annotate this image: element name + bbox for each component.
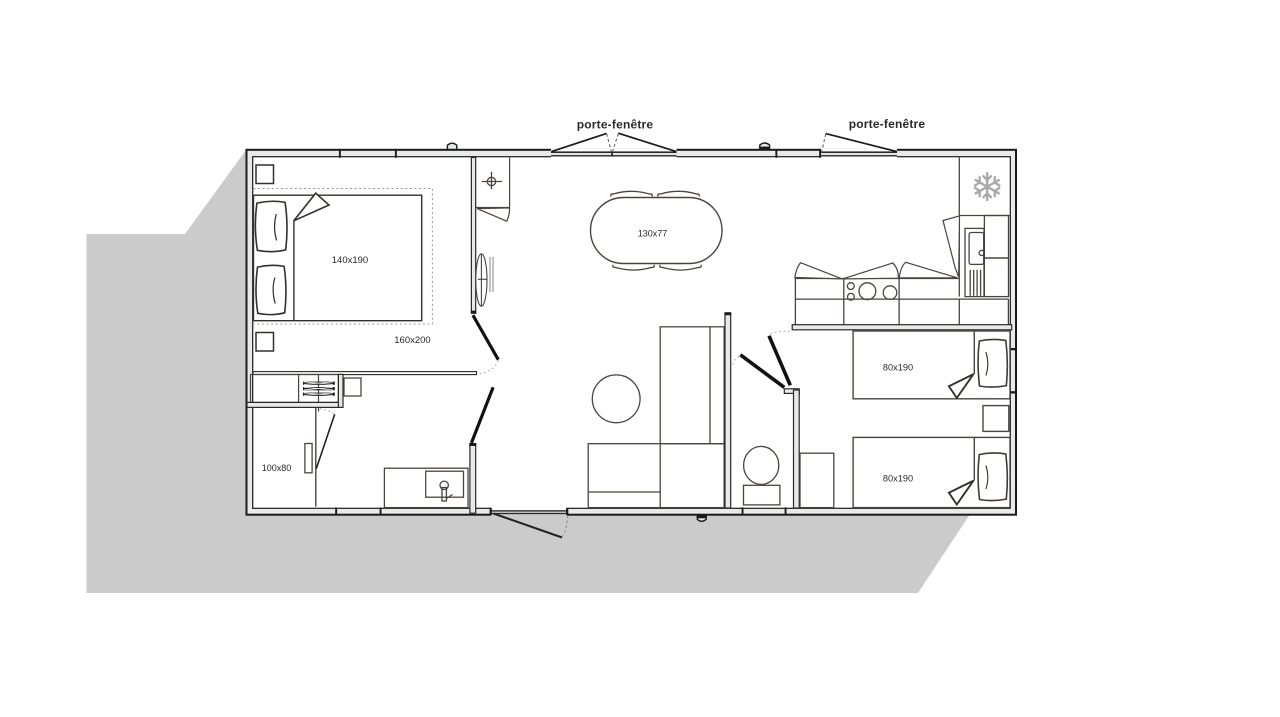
svg-text:100x80: 100x80 (262, 463, 292, 473)
svg-text:130x77: 130x77 (638, 229, 668, 239)
svg-text:porte-fenêtre: porte-fenêtre (849, 117, 926, 131)
svg-text:80x190: 80x190 (883, 362, 913, 372)
svg-text:porte-fenêtre: porte-fenêtre (577, 118, 654, 132)
svg-text:140x190: 140x190 (332, 255, 368, 266)
svg-text:80x190: 80x190 (883, 474, 913, 484)
svg-text:160x200: 160x200 (394, 335, 430, 346)
